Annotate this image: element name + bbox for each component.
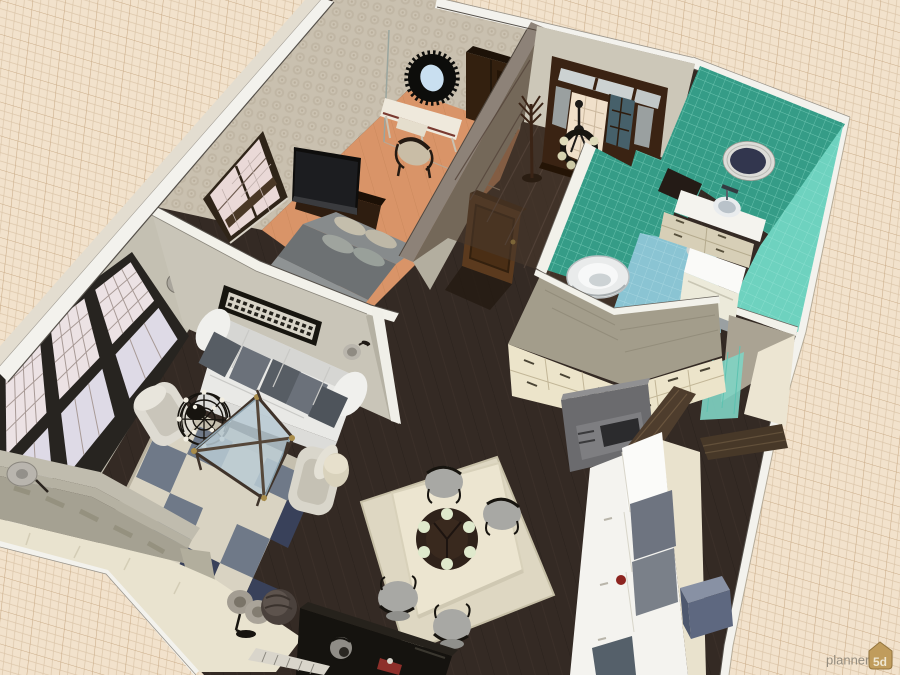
svg-text:planner: planner	[826, 653, 870, 668]
svg-text:5d: 5d	[873, 655, 887, 669]
